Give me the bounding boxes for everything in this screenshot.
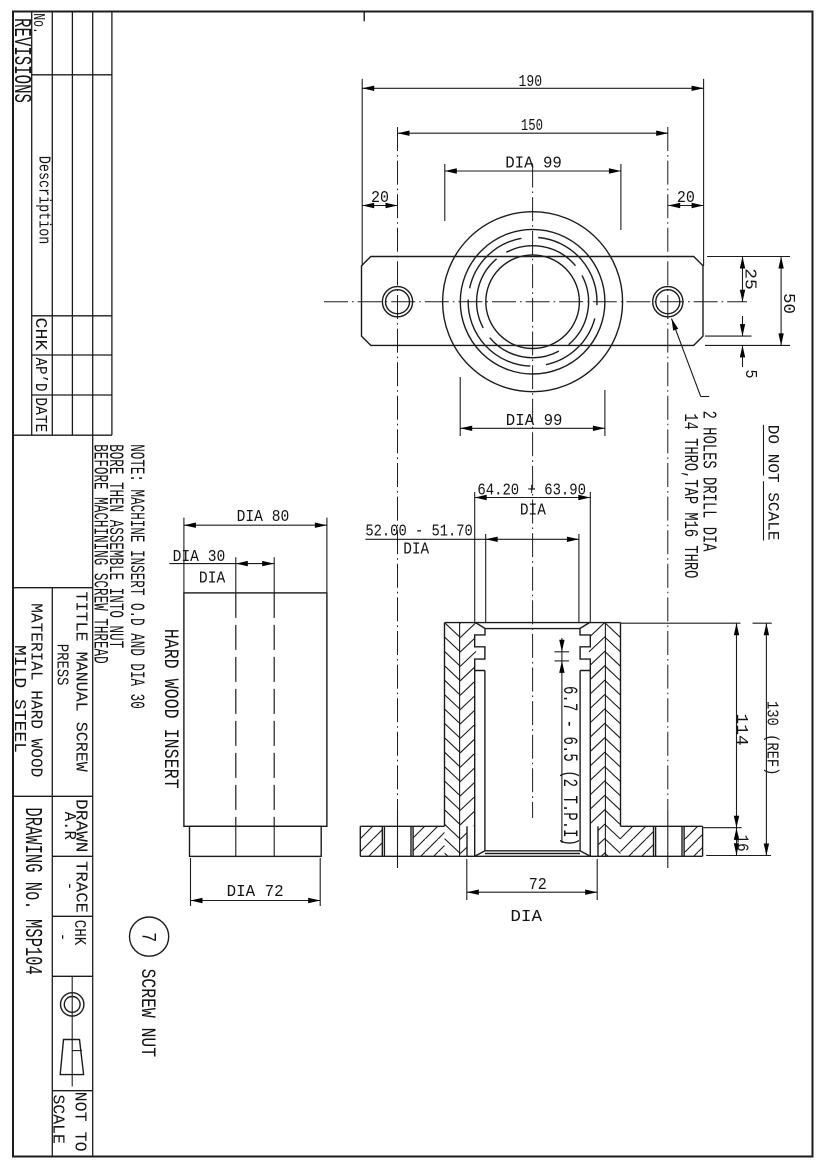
svg-text:20: 20 [677,189,695,208]
svg-text:AP’D: AP’D [30,358,49,392]
svg-text:7: 7 [136,932,159,942]
svg-text:HARD WOOD INSERT: HARD WOOD INSERT [158,629,181,789]
svg-text:DRAWING No. MSP104: DRAWING No. MSP104 [18,807,45,974]
svg-text:SCALE: SCALE [47,1095,66,1144]
svg-text:DO NOT SCALE: DO NOT SCALE [763,425,781,541]
svg-text:114: 114 [731,714,750,746]
svg-text:Description: Description [33,156,52,244]
svg-text:DIA: DIA [403,541,430,560]
svg-text:150: 150 [521,117,543,136]
svg-text:NOT TO: NOT TO [70,1092,89,1152]
svg-text:-: - [52,933,71,941]
svg-text:DIA: DIA [520,502,547,521]
svg-text:DIA 72: DIA 72 [227,883,284,902]
svg-text:DIA 80: DIA 80 [237,508,290,527]
svg-text:SCREW NUT: SCREW NUT [135,969,158,1058]
svg-text:DIA 99: DIA 99 [505,155,562,174]
svg-text:MILD STEEL: MILD STEEL [9,645,28,753]
svg-text:20: 20 [371,189,389,208]
svg-text:TITLE MANUAL SCREW: TITLE MANUAL SCREW [71,592,90,773]
svg-text:BEFORE MACHINING SCREW THREAD: BEFORE MACHINING SCREW THREAD [87,444,110,664]
svg-text:DIA 30: DIA 30 [173,548,226,567]
svg-text:6.7 - 6.5 (2 T.P.I): 6.7 - 6.5 (2 T.P.I) [557,686,580,846]
svg-text:16: 16 [731,835,750,852]
svg-text:130 (REF): 130 (REF) [761,701,780,776]
svg-text:A.R: A.R [59,812,78,840]
svg-text:50: 50 [778,293,797,314]
svg-text:72: 72 [529,876,547,895]
svg-text:DIA 99: DIA 99 [506,412,563,431]
svg-text:No.: No. [28,13,47,34]
svg-text:64.20 + 63.90: 64.20 + 63.90 [477,481,586,500]
svg-text:DIA: DIA [199,570,226,589]
svg-text:25: 25 [740,268,759,290]
svg-text:DIA: DIA [510,908,542,927]
svg-text:14 THRO,TAP M16 THRO: 14 THRO,TAP M16 THRO [679,413,701,578]
svg-text:52.00 - 51.70: 52.00 - 51.70 [365,523,472,542]
svg-text:5: 5 [740,370,759,379]
svg-text:-: - [59,882,78,890]
svg-text:NOTE: MACHINE INSERT O.D AND D: NOTE: MACHINE INSERT O.D AND DIA 30 [124,444,147,709]
svg-text:CHK: CHK [30,318,49,352]
svg-text:PRESS: PRESS [52,644,71,686]
svg-text:190: 190 [519,73,543,92]
svg-text:DATE: DATE [30,397,49,432]
